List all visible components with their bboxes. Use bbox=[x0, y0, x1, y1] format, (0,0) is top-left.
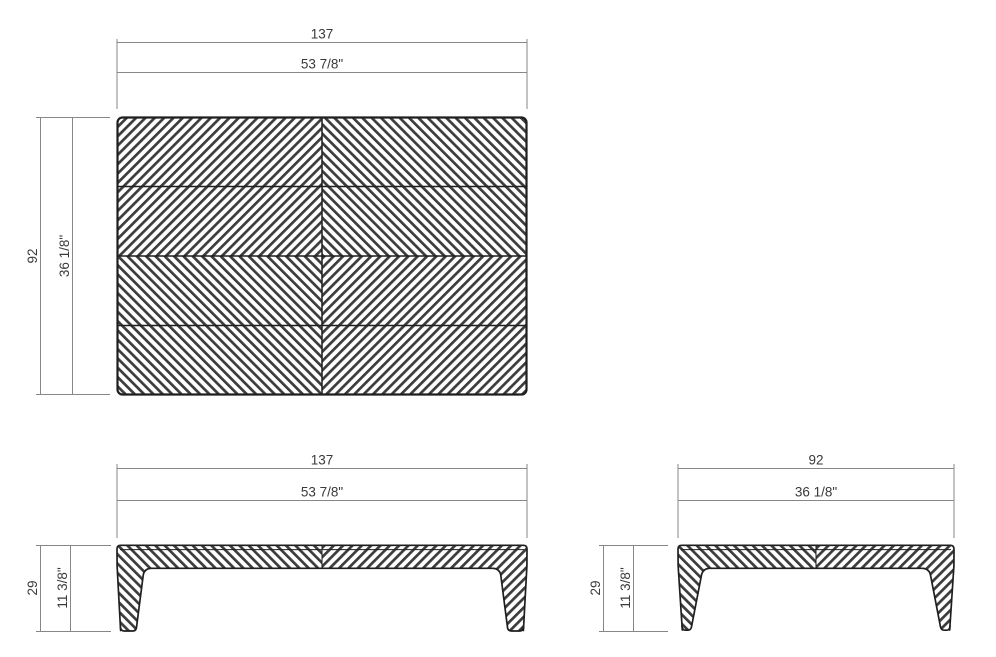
front-view-height-dimension: 29 11 3/8" bbox=[25, 546, 111, 632]
side-hatch-left bbox=[677, 544, 816, 633]
top-width-cm-label: 137 bbox=[311, 27, 334, 42]
front-height-in-label: 11 3/8" bbox=[55, 567, 70, 609]
side-view-depth-dimension: 92 36 1/8" bbox=[678, 453, 954, 539]
front-inner-outline bbox=[120, 568, 523, 631]
top-view-width-dimension: 137 53 7/8" bbox=[117, 27, 527, 110]
technical-drawing-page: 137 53 7/8" 92 36 1/8" 137 53 7/8" bbox=[0, 0, 996, 657]
side-height-in-label: 11 3/8" bbox=[618, 567, 633, 609]
front-hatch-right bbox=[322, 544, 528, 633]
side-view-height-dimension: 29 11 3/8" bbox=[588, 546, 668, 632]
side-inner-outline bbox=[682, 568, 950, 630]
front-view bbox=[116, 544, 528, 633]
front-hatch-left bbox=[116, 544, 322, 633]
side-depth-in-label: 36 1/8" bbox=[795, 485, 838, 500]
front-width-in-label: 53 7/8" bbox=[301, 485, 344, 500]
front-height-cm-label: 29 bbox=[25, 580, 40, 595]
side-hatch-right bbox=[816, 544, 955, 633]
top-view bbox=[118, 118, 527, 395]
side-height-cm-label: 29 bbox=[588, 580, 603, 595]
top-depth-cm-label: 92 bbox=[25, 248, 40, 263]
top-view-depth-dimension: 92 36 1/8" bbox=[25, 118, 110, 395]
front-width-cm-label: 137 bbox=[311, 453, 334, 468]
side-view bbox=[677, 544, 955, 633]
technical-drawing-canvas: 137 53 7/8" 92 36 1/8" 137 53 7/8" bbox=[0, 0, 996, 657]
side-depth-cm-label: 92 bbox=[808, 453, 823, 468]
front-view-width-dimension: 137 53 7/8" bbox=[117, 453, 527, 539]
top-width-in-label: 53 7/8" bbox=[301, 57, 344, 72]
top-depth-in-label: 36 1/8" bbox=[57, 235, 72, 278]
